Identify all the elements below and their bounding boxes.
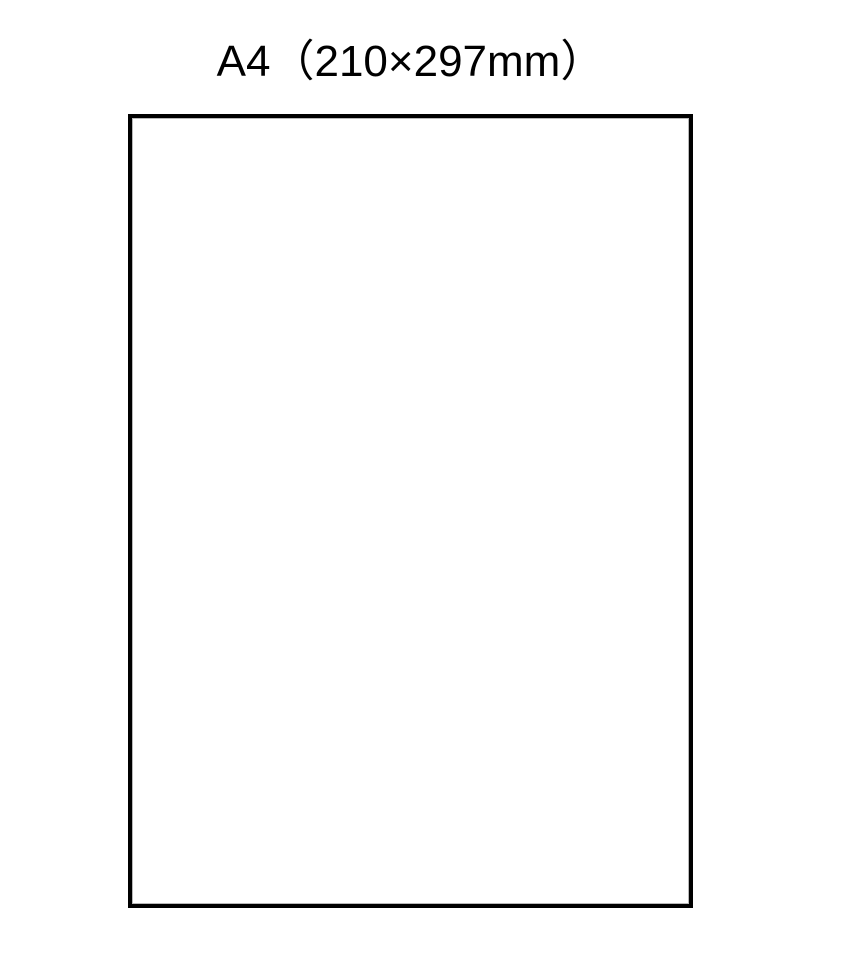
diagram-title: A4（210×297mm） [128,38,693,86]
diagram-canvas: A4（210×297mm） [0,0,864,953]
a4-page-outline [128,114,693,908]
